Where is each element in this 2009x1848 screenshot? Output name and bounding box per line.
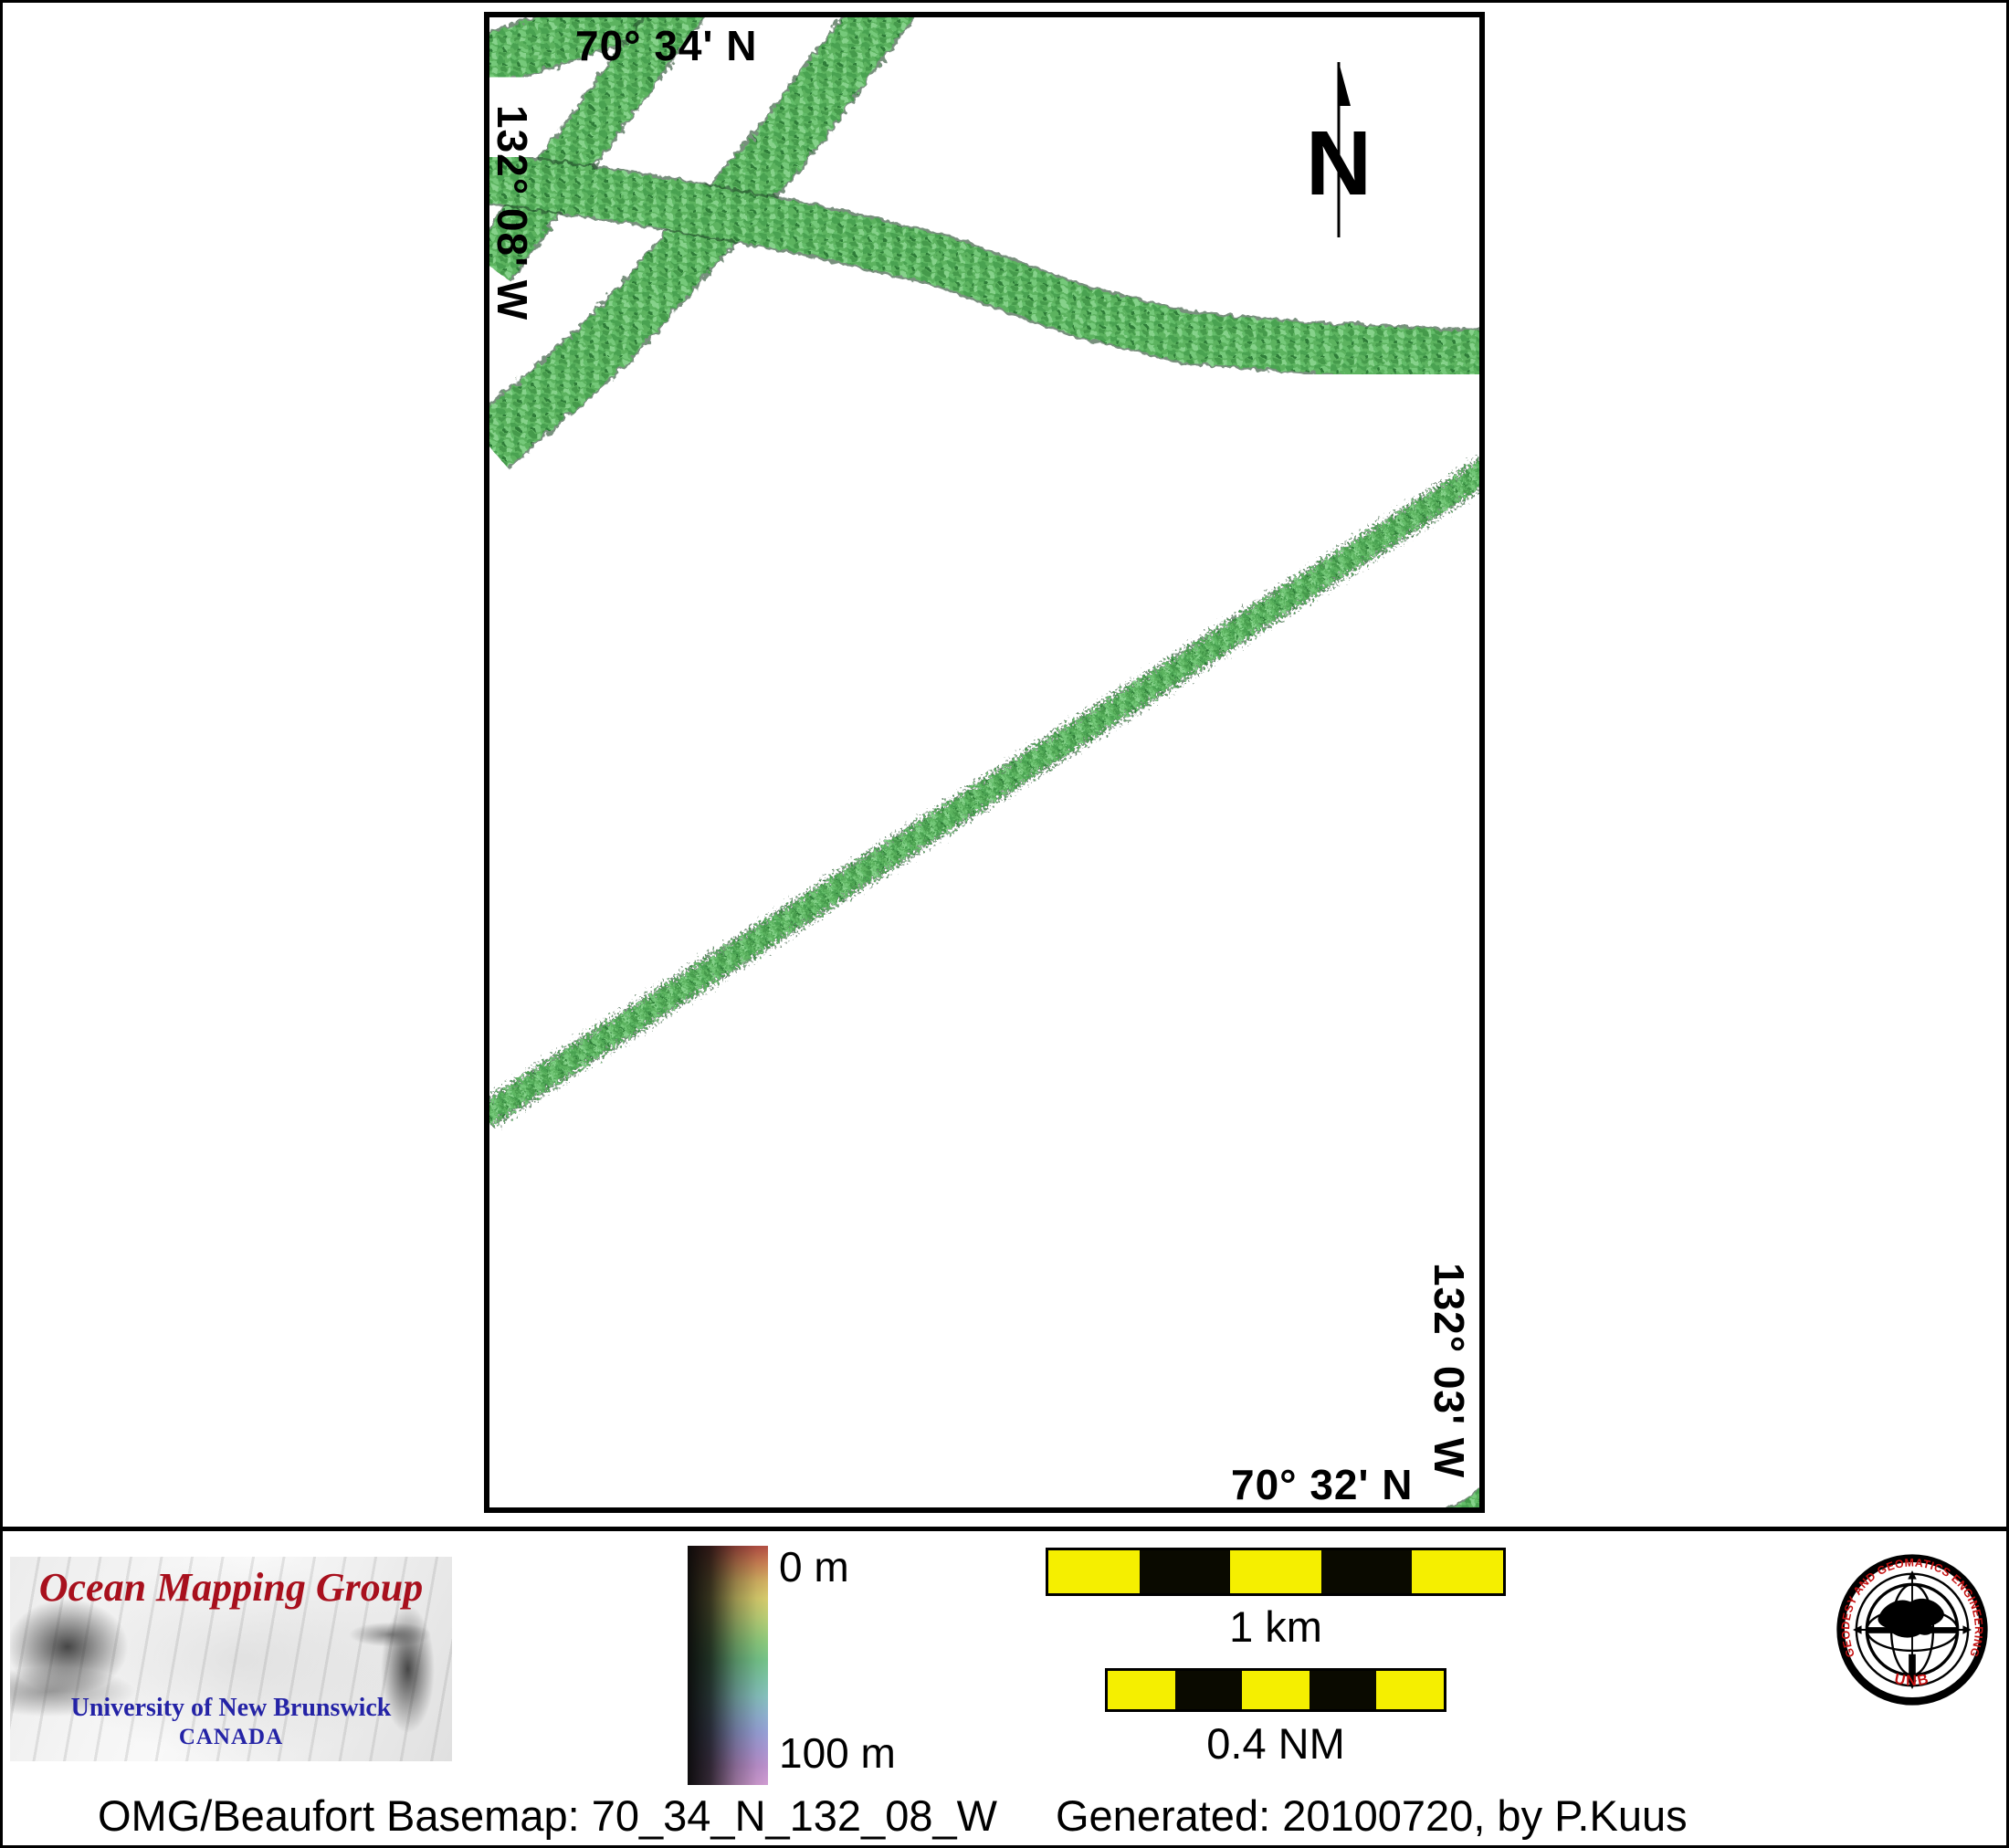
scalebar-km-label: 1 km: [1046, 1601, 1506, 1652]
survey-swath-layer: [489, 17, 1479, 1507]
scalebar-segment: [1310, 1671, 1377, 1709]
label-right-longitude: 132° 03' W: [1425, 1263, 1474, 1478]
omg-logo-title: Ocean Mapping Group: [10, 1564, 452, 1611]
survey-swath-thin-diagonal-swath: [489, 467, 1479, 1116]
scalebar-segment: [1175, 1671, 1243, 1709]
north-arrow-flag: [1339, 62, 1351, 106]
label-bottom-latitude: 70° 32' N: [1231, 1460, 1413, 1509]
scalebar-segment: [1321, 1550, 1413, 1593]
map-frame: N 70° 34' N 132° 08' W 132° 03' W 70° 32…: [484, 12, 1485, 1513]
caption: OMG/Beaufort Basemap: 70_34_N_132_08_W G…: [98, 1790, 1688, 1841]
unb-geodesy-seal: GEODESY AND GEOMATICS ENGINEERING UNB: [1834, 1551, 1991, 1708]
footer-divider: [3, 1527, 2009, 1531]
caption-gap: [997, 1790, 1056, 1841]
scalebar-segment: [1412, 1550, 1503, 1593]
label-left-longitude: 132° 08' W: [488, 105, 537, 320]
scalebar-segment: [1242, 1671, 1310, 1709]
seal-unb-text: UNB: [1893, 1671, 1931, 1690]
map-canvas: N: [489, 17, 1479, 1507]
scalebar-nm-label: 0.4 NM: [1105, 1718, 1446, 1769]
depth-colorbar: [688, 1546, 768, 1785]
colorbar-min-label: 0 m: [779, 1542, 849, 1591]
label-top-latitude: 70° 34' N: [575, 21, 757, 70]
colorbar-max-label: 100 m: [779, 1728, 896, 1778]
scalebar-segment: [1230, 1550, 1321, 1593]
caption-generated: Generated: 20100720, by P.Kuus: [1056, 1790, 1688, 1841]
basemap-page: N 70° 34' N 132° 08' W 132° 03' W 70° 32…: [0, 0, 2009, 1848]
scalebar-segment: [1048, 1550, 1140, 1593]
scalebar-nm: [1105, 1668, 1446, 1712]
north-arrow-label: N: [1306, 112, 1372, 215]
scalebar-km: [1046, 1548, 1506, 1596]
caption-basemap: OMG/Beaufort Basemap: 70_34_N_132_08_W: [98, 1790, 997, 1841]
scalebar-segment: [1108, 1671, 1175, 1709]
scalebar-segment: [1376, 1671, 1444, 1709]
north-arrow: N: [1306, 62, 1372, 237]
scalebar-segment: [1140, 1550, 1231, 1593]
omg-logo-country: CANADA: [10, 1725, 452, 1750]
omg-logo-university: University of New Brunswick: [10, 1694, 452, 1723]
omg-logo: Ocean Mapping Group University of New Br…: [10, 1557, 452, 1761]
